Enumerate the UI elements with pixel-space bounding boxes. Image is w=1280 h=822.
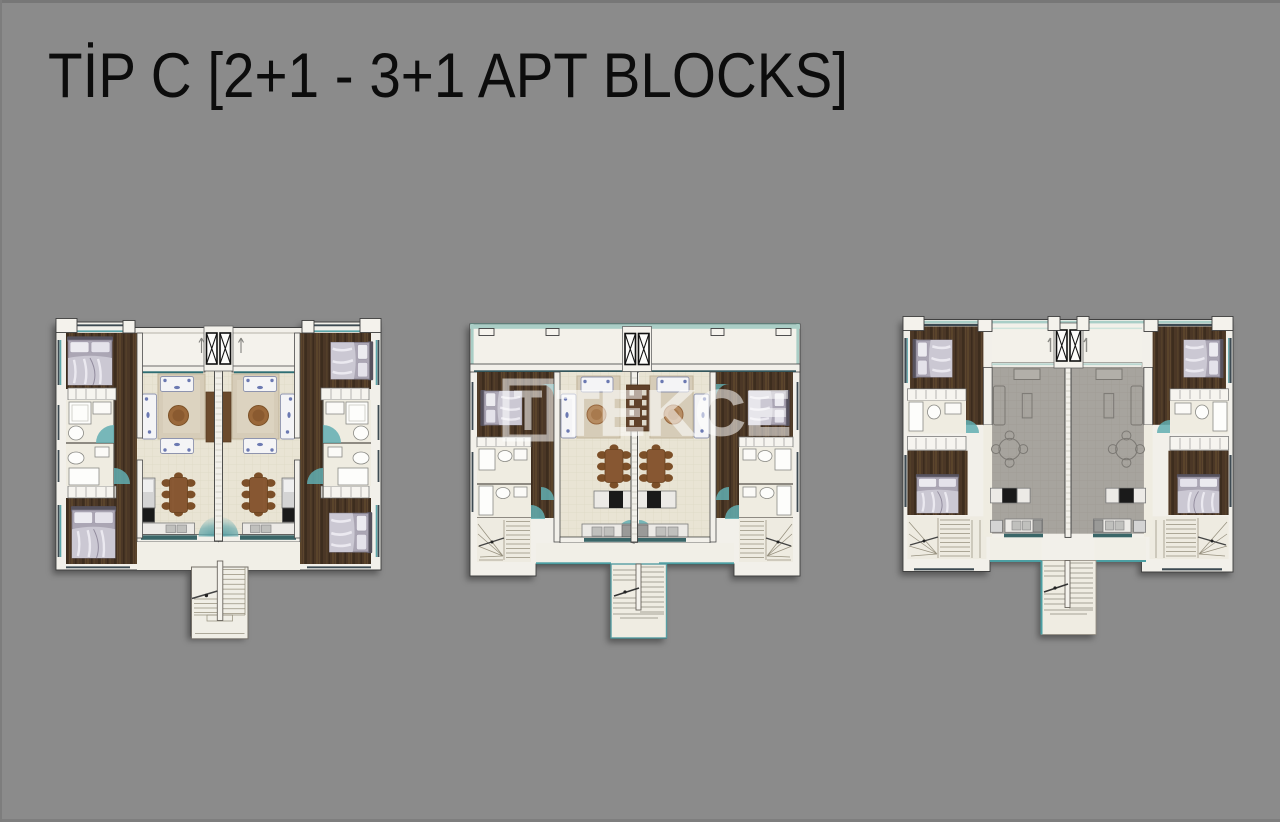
svg-text:TİP C [2+1 - 3+1 APT BLOCKS]: TİP C [2+1 - 3+1 APT BLOCKS] bbox=[48, 41, 848, 111]
svg-text:TEKCE: TEKCE bbox=[557, 377, 791, 449]
